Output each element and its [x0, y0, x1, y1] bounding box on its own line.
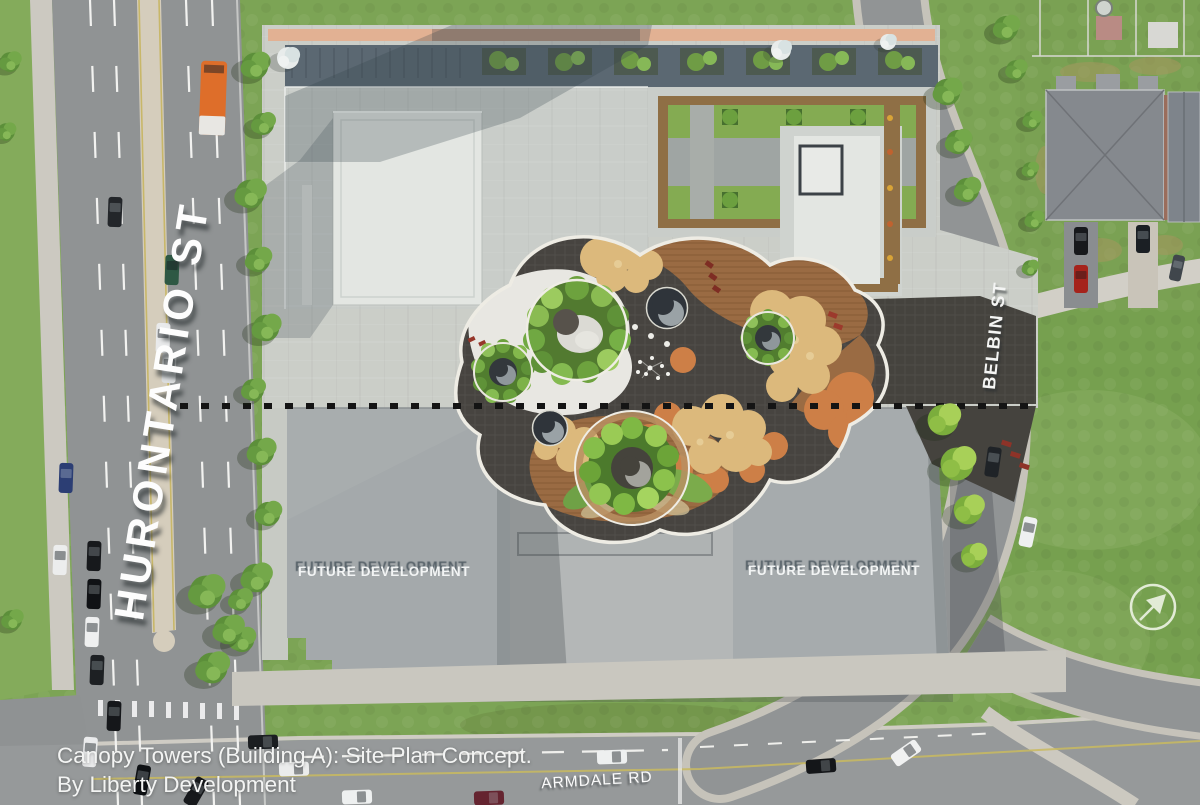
site-plan-aerial-rendering: HURONTARIO ST BELBIN ST ARMDALE RD FUTUR…	[0, 0, 1200, 805]
transit-bus	[199, 61, 228, 136]
future-development-label-east: FUTURE DEVELOPMENT	[748, 563, 908, 578]
future-development-label-west: FUTURE DEVELOPMENT	[298, 564, 458, 579]
caption-line2: By Liberty Development	[57, 770, 532, 799]
large-planter-south	[575, 411, 689, 525]
caption-line1: Canopy Towers (Building A): Site Plan Co…	[57, 741, 532, 770]
hurontario-street	[0, 0, 268, 805]
caption: Canopy Towers (Building A): Site Plan Co…	[57, 741, 532, 799]
house-roof	[1046, 90, 1200, 222]
